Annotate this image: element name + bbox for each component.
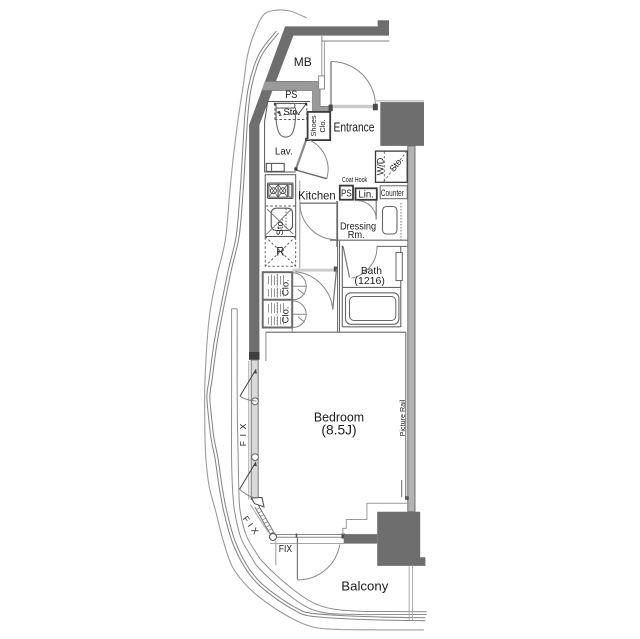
svg-text:PS: PS bbox=[341, 188, 352, 200]
svg-text:W/D: W/D bbox=[375, 157, 385, 175]
svg-text:Sto.: Sto. bbox=[275, 219, 286, 236]
svg-text:Rm.: Rm. bbox=[348, 230, 365, 241]
svg-text:MB: MB bbox=[294, 55, 312, 69]
svg-text:Lin.: Lin. bbox=[358, 189, 374, 201]
svg-text:PS: PS bbox=[285, 89, 297, 101]
svg-text:Counter: Counter bbox=[381, 188, 404, 199]
svg-text:Entrance: Entrance bbox=[334, 120, 375, 134]
svg-text:Clo.: Clo. bbox=[318, 119, 327, 132]
svg-text:(8.5J): (8.5J) bbox=[321, 422, 356, 437]
svg-text:Coat Hook: Coat Hook bbox=[342, 177, 368, 184]
svg-text:Lav.: Lav. bbox=[275, 146, 293, 158]
svg-text:Kitchen: Kitchen bbox=[298, 188, 336, 202]
svg-text:Balcony: Balcony bbox=[341, 579, 389, 594]
svg-text:(1216): (1216) bbox=[354, 275, 385, 287]
svg-text:Shoes: Shoes bbox=[309, 115, 318, 137]
svg-text:FIX: FIX bbox=[279, 544, 293, 555]
svg-text:R: R bbox=[276, 247, 284, 259]
svg-text:Picture Rail: Picture Rail bbox=[398, 399, 407, 436]
svg-text:Clo.: Clo. bbox=[281, 279, 292, 296]
svg-text:Clo.: Clo. bbox=[281, 306, 292, 323]
svg-text:Sto.: Sto. bbox=[283, 107, 300, 118]
svg-text:FIX: FIX bbox=[238, 419, 248, 446]
